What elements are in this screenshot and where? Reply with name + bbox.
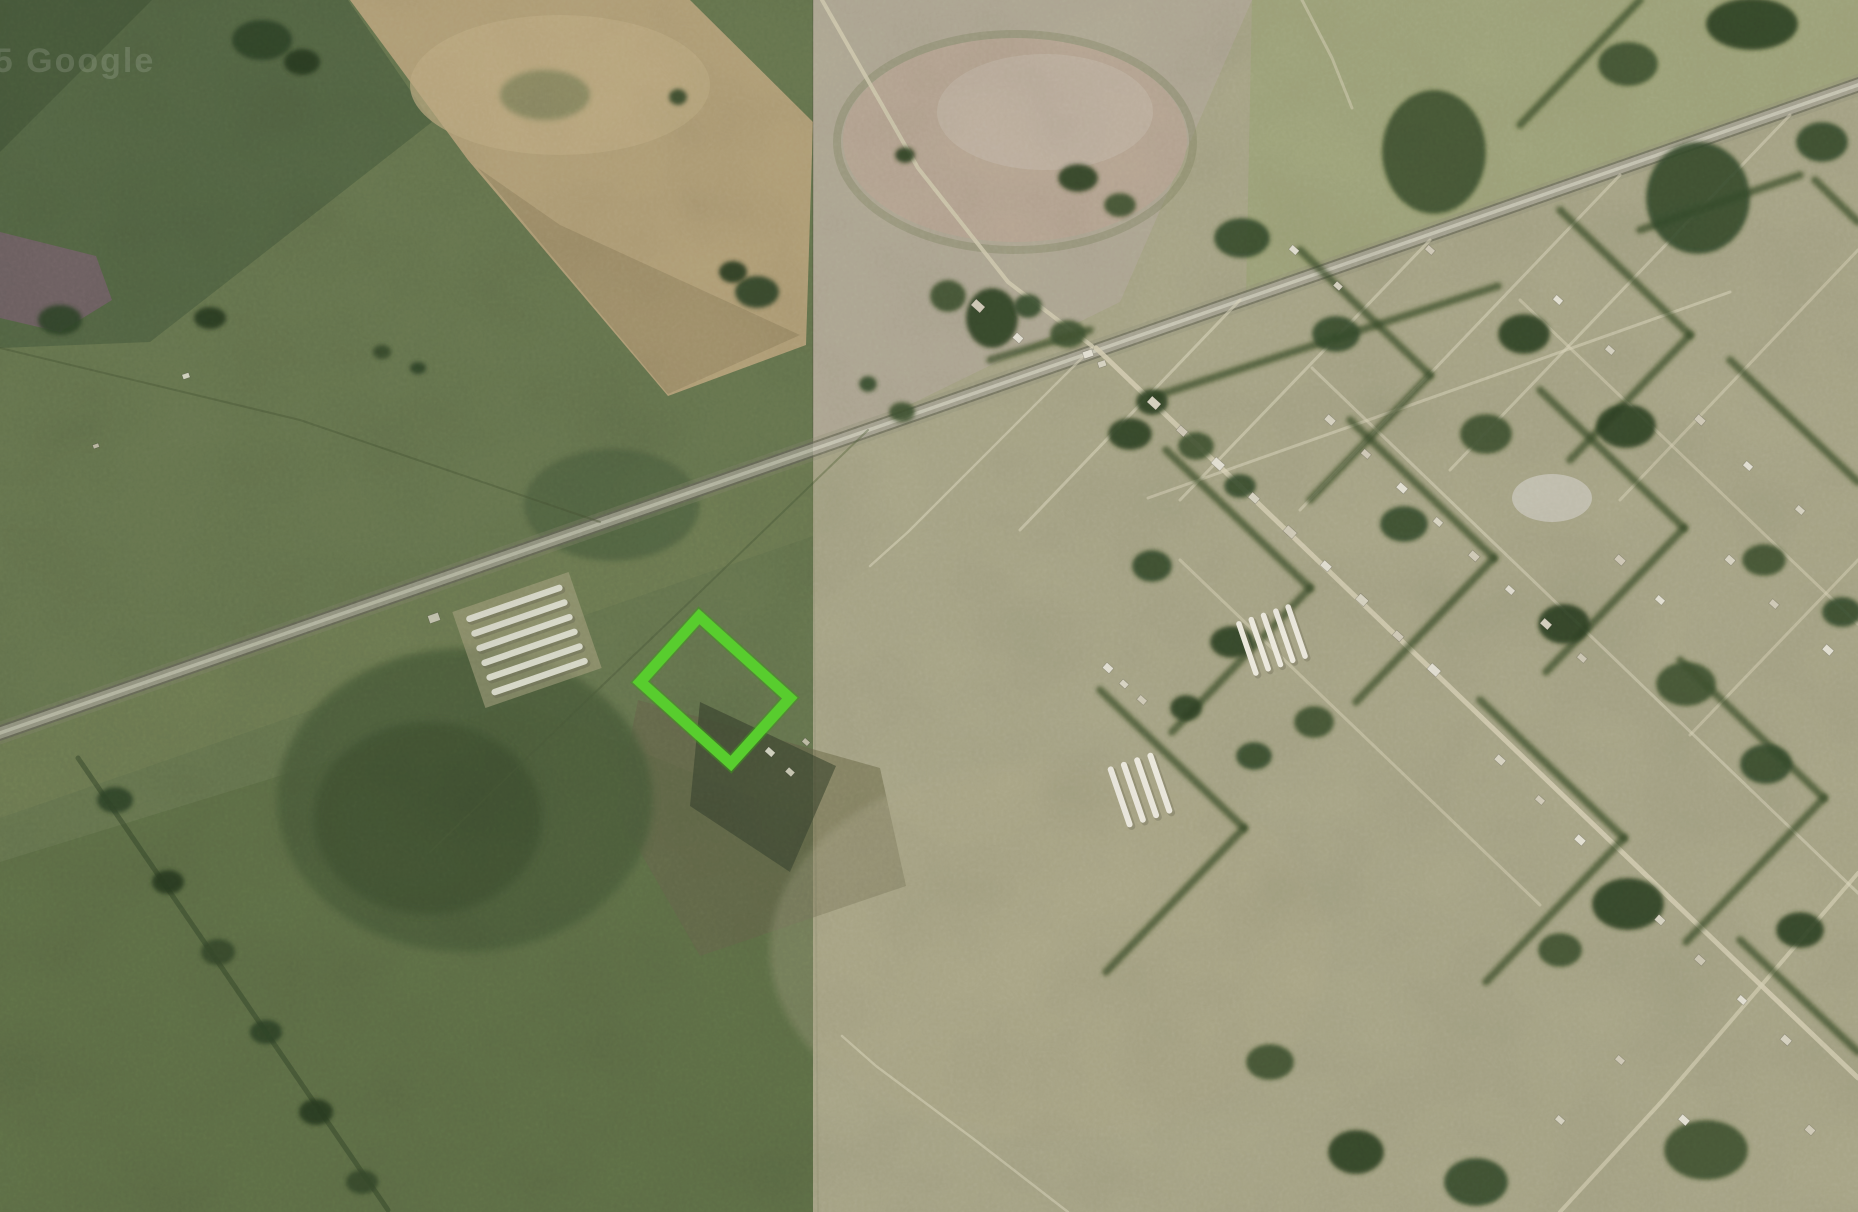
right-imagery-tint bbox=[813, 0, 1858, 1212]
color-tint-layer bbox=[0, 0, 1858, 1212]
satellite-map-canvas: ©2015 Google bbox=[0, 0, 1858, 1212]
satellite-map-view[interactable]: ©2015 Google bbox=[0, 0, 1858, 1212]
google-watermark: ©2015 Google bbox=[0, 42, 155, 80]
left-imagery-tint bbox=[0, 0, 813, 1212]
